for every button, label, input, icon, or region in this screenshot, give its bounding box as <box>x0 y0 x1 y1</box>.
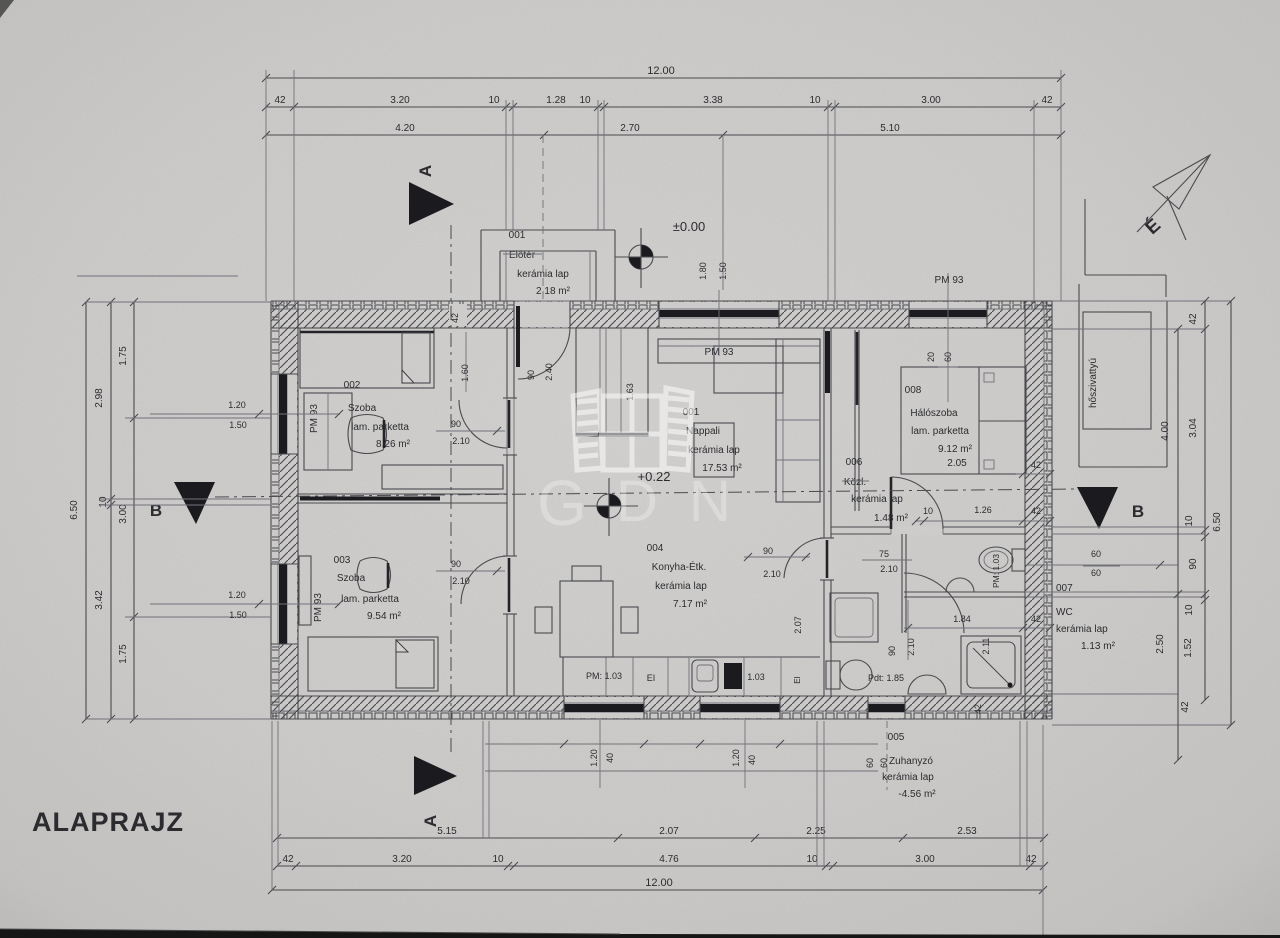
svg-text:3.00: 3.00 <box>118 504 129 524</box>
svg-text:006: 006 <box>846 457 863 468</box>
svg-text:3.20: 3.20 <box>392 854 412 865</box>
svg-text:9.54 m²: 9.54 m² <box>367 611 402 622</box>
svg-text:10: 10 <box>579 95 591 106</box>
svg-text:1.50: 1.50 <box>229 420 247 430</box>
svg-text:D: D <box>616 469 658 534</box>
svg-text:90: 90 <box>763 546 773 556</box>
svg-text:1.48 m²: 1.48 m² <box>874 513 909 524</box>
svg-text:4.76: 4.76 <box>659 854 679 865</box>
svg-text:1.28: 1.28 <box>546 95 566 106</box>
svg-text:60: 60 <box>865 758 875 768</box>
svg-text:60: 60 <box>943 352 953 362</box>
svg-text:2.05: 2.05 <box>947 458 967 469</box>
svg-text:1.75: 1.75 <box>118 644 129 664</box>
svg-text:2.10: 2.10 <box>880 564 898 574</box>
svg-text:002: 002 <box>344 380 361 391</box>
svg-text:1.80: 1.80 <box>698 262 708 280</box>
svg-text:90: 90 <box>1188 558 1199 570</box>
svg-text:42: 42 <box>1031 460 1041 470</box>
svg-text:2.07: 2.07 <box>793 616 803 634</box>
svg-text:2.25: 2.25 <box>806 826 826 837</box>
svg-text:3.00: 3.00 <box>915 854 935 865</box>
svg-text:lam. parketta: lam. parketta <box>341 594 399 605</box>
svg-text:6.50: 6.50 <box>69 500 80 520</box>
svg-text:10: 10 <box>809 95 821 106</box>
svg-text:Pdt: 1.85: Pdt: 1.85 <box>868 673 904 683</box>
svg-text:4.00: 4.00 <box>1160 421 1171 441</box>
svg-text:42: 42 <box>1031 614 1041 624</box>
svg-text:kerámia lap: kerámia lap <box>655 581 707 592</box>
svg-text:2.40: 2.40 <box>544 363 554 381</box>
svg-text:3.38: 3.38 <box>703 95 723 106</box>
svg-text:1.75: 1.75 <box>118 346 129 366</box>
svg-text:2.10: 2.10 <box>452 436 470 446</box>
svg-text:2.10: 2.10 <box>452 576 470 586</box>
svg-text:kerámia lap: kerámia lap <box>1056 624 1108 635</box>
svg-text:-4.56 m²: -4.56 m² <box>898 789 936 800</box>
svg-text:60: 60 <box>879 758 889 768</box>
svg-text:10: 10 <box>98 496 109 508</box>
svg-text:PM 93: PM 93 <box>309 404 320 433</box>
svg-text:3.20: 3.20 <box>390 95 410 106</box>
svg-text:10: 10 <box>1184 604 1195 616</box>
svg-text:40: 40 <box>747 755 757 765</box>
svg-text:Előtér: Előtér <box>509 250 536 261</box>
svg-text:hőszivattyú: hőszivattyú <box>1088 358 1099 408</box>
svg-text:2.98: 2.98 <box>94 388 105 408</box>
svg-text:1.20: 1.20 <box>228 400 246 410</box>
svg-text:Szoba: Szoba <box>337 573 366 584</box>
svg-text:2.18 m²: 2.18 m² <box>536 286 571 297</box>
svg-text:9.12 m²: 9.12 m² <box>938 444 973 455</box>
svg-text:7.17 m²: 7.17 m² <box>673 599 708 610</box>
svg-text:12.00: 12.00 <box>647 65 675 77</box>
svg-text:1.26: 1.26 <box>974 505 992 515</box>
svg-text:10: 10 <box>923 506 933 516</box>
svg-text:40: 40 <box>605 753 615 763</box>
svg-text:PM 93: PM 93 <box>313 593 324 622</box>
svg-text:004: 004 <box>647 543 664 554</box>
svg-text:1.50: 1.50 <box>718 262 728 280</box>
svg-text:42: 42 <box>282 854 294 865</box>
svg-text:5.15: 5.15 <box>437 826 457 837</box>
svg-text:42: 42 <box>973 704 983 714</box>
svg-text:3.04: 3.04 <box>1188 418 1199 438</box>
svg-text:2.10: 2.10 <box>906 638 916 656</box>
svg-text:90: 90 <box>451 559 461 569</box>
svg-text:1.13 m²: 1.13 m² <box>1081 641 1116 652</box>
svg-text:90: 90 <box>451 419 461 429</box>
svg-text:10: 10 <box>488 95 500 106</box>
svg-text:PM 93: PM 93 <box>935 275 964 286</box>
svg-text:003: 003 <box>334 555 351 566</box>
svg-text:10: 10 <box>1184 515 1195 527</box>
svg-text:60: 60 <box>1091 549 1101 559</box>
svg-text:kerámia lap: kerámia lap <box>851 494 903 505</box>
svg-text:12.00: 12.00 <box>645 877 673 889</box>
svg-text:B: B <box>1132 502 1144 521</box>
svg-text:lam. parketta: lam. parketta <box>351 422 409 433</box>
svg-text:2.10: 2.10 <box>763 569 781 579</box>
svg-text:20: 20 <box>926 352 936 362</box>
svg-text:1.84: 1.84 <box>953 614 971 624</box>
svg-text:1.20: 1.20 <box>731 749 741 767</box>
svg-text:90: 90 <box>887 646 897 656</box>
svg-text:42: 42 <box>1031 506 1041 516</box>
svg-text:10: 10 <box>806 854 818 865</box>
svg-text:4.20: 4.20 <box>395 123 415 134</box>
svg-text:2.70: 2.70 <box>620 123 640 134</box>
svg-text:±0.00: ±0.00 <box>673 219 705 234</box>
svg-text:G: G <box>537 467 587 539</box>
svg-text:008: 008 <box>905 385 922 396</box>
svg-text:10: 10 <box>492 854 504 865</box>
svg-text:8.26 m²: 8.26 m² <box>376 439 411 450</box>
svg-text:001: 001 <box>509 230 526 241</box>
svg-text:lam. parketta: lam. parketta <box>911 426 969 437</box>
svg-text:2.11: 2.11 <box>981 638 991 655</box>
svg-text:1.50: 1.50 <box>229 610 247 620</box>
svg-text:42: 42 <box>1180 701 1191 713</box>
svg-text:Hálószoba: Hálószoba <box>910 408 958 419</box>
svg-text:42: 42 <box>1041 95 1053 106</box>
svg-text:B: B <box>150 501 162 520</box>
svg-text:Konyha-Étk.: Konyha-Étk. <box>652 560 706 573</box>
svg-text:007: 007 <box>1056 583 1073 594</box>
svg-text:2.53: 2.53 <box>957 826 977 837</box>
svg-text:WC: WC <box>1056 607 1073 618</box>
svg-text:PM: 1.03: PM: 1.03 <box>991 554 1001 588</box>
svg-text:1.03: 1.03 <box>747 672 765 682</box>
svg-text:5.10: 5.10 <box>880 123 900 134</box>
svg-text:1.52: 1.52 <box>1183 638 1194 658</box>
svg-text:PM: 1.03: PM: 1.03 <box>586 671 622 681</box>
svg-text:1.20: 1.20 <box>228 590 246 600</box>
svg-text:Szoba: Szoba <box>348 403 377 414</box>
svg-text:90: 90 <box>526 370 536 380</box>
svg-text:EI: EI <box>793 676 802 684</box>
svg-text:1.20: 1.20 <box>589 749 599 767</box>
svg-text:60: 60 <box>1091 568 1101 578</box>
svg-text:42: 42 <box>1188 313 1199 325</box>
svg-text:6.50: 6.50 <box>1212 512 1223 532</box>
svg-text:kerámia lap: kerámia lap <box>882 772 934 783</box>
svg-text:1.60: 1.60 <box>460 364 470 382</box>
svg-text:Közl.: Közl. <box>844 477 866 488</box>
svg-text:3.00: 3.00 <box>921 95 941 106</box>
svg-text:75: 75 <box>879 549 889 559</box>
svg-text:42: 42 <box>274 95 286 106</box>
svg-text:N: N <box>689 469 731 534</box>
svg-text:kerámia lap: kerámia lap <box>688 445 740 456</box>
svg-text:005: 005 <box>888 732 905 743</box>
svg-text:ALAPRAJZ: ALAPRAJZ <box>32 807 184 837</box>
svg-text:3.42: 3.42 <box>94 590 105 610</box>
svg-text:2.07: 2.07 <box>659 826 679 837</box>
svg-text:2.50: 2.50 <box>1155 634 1166 654</box>
svg-text:A: A <box>416 165 435 177</box>
svg-text:Zuhanyzó: Zuhanyzó <box>889 756 933 767</box>
svg-text:EI: EI <box>647 673 656 683</box>
